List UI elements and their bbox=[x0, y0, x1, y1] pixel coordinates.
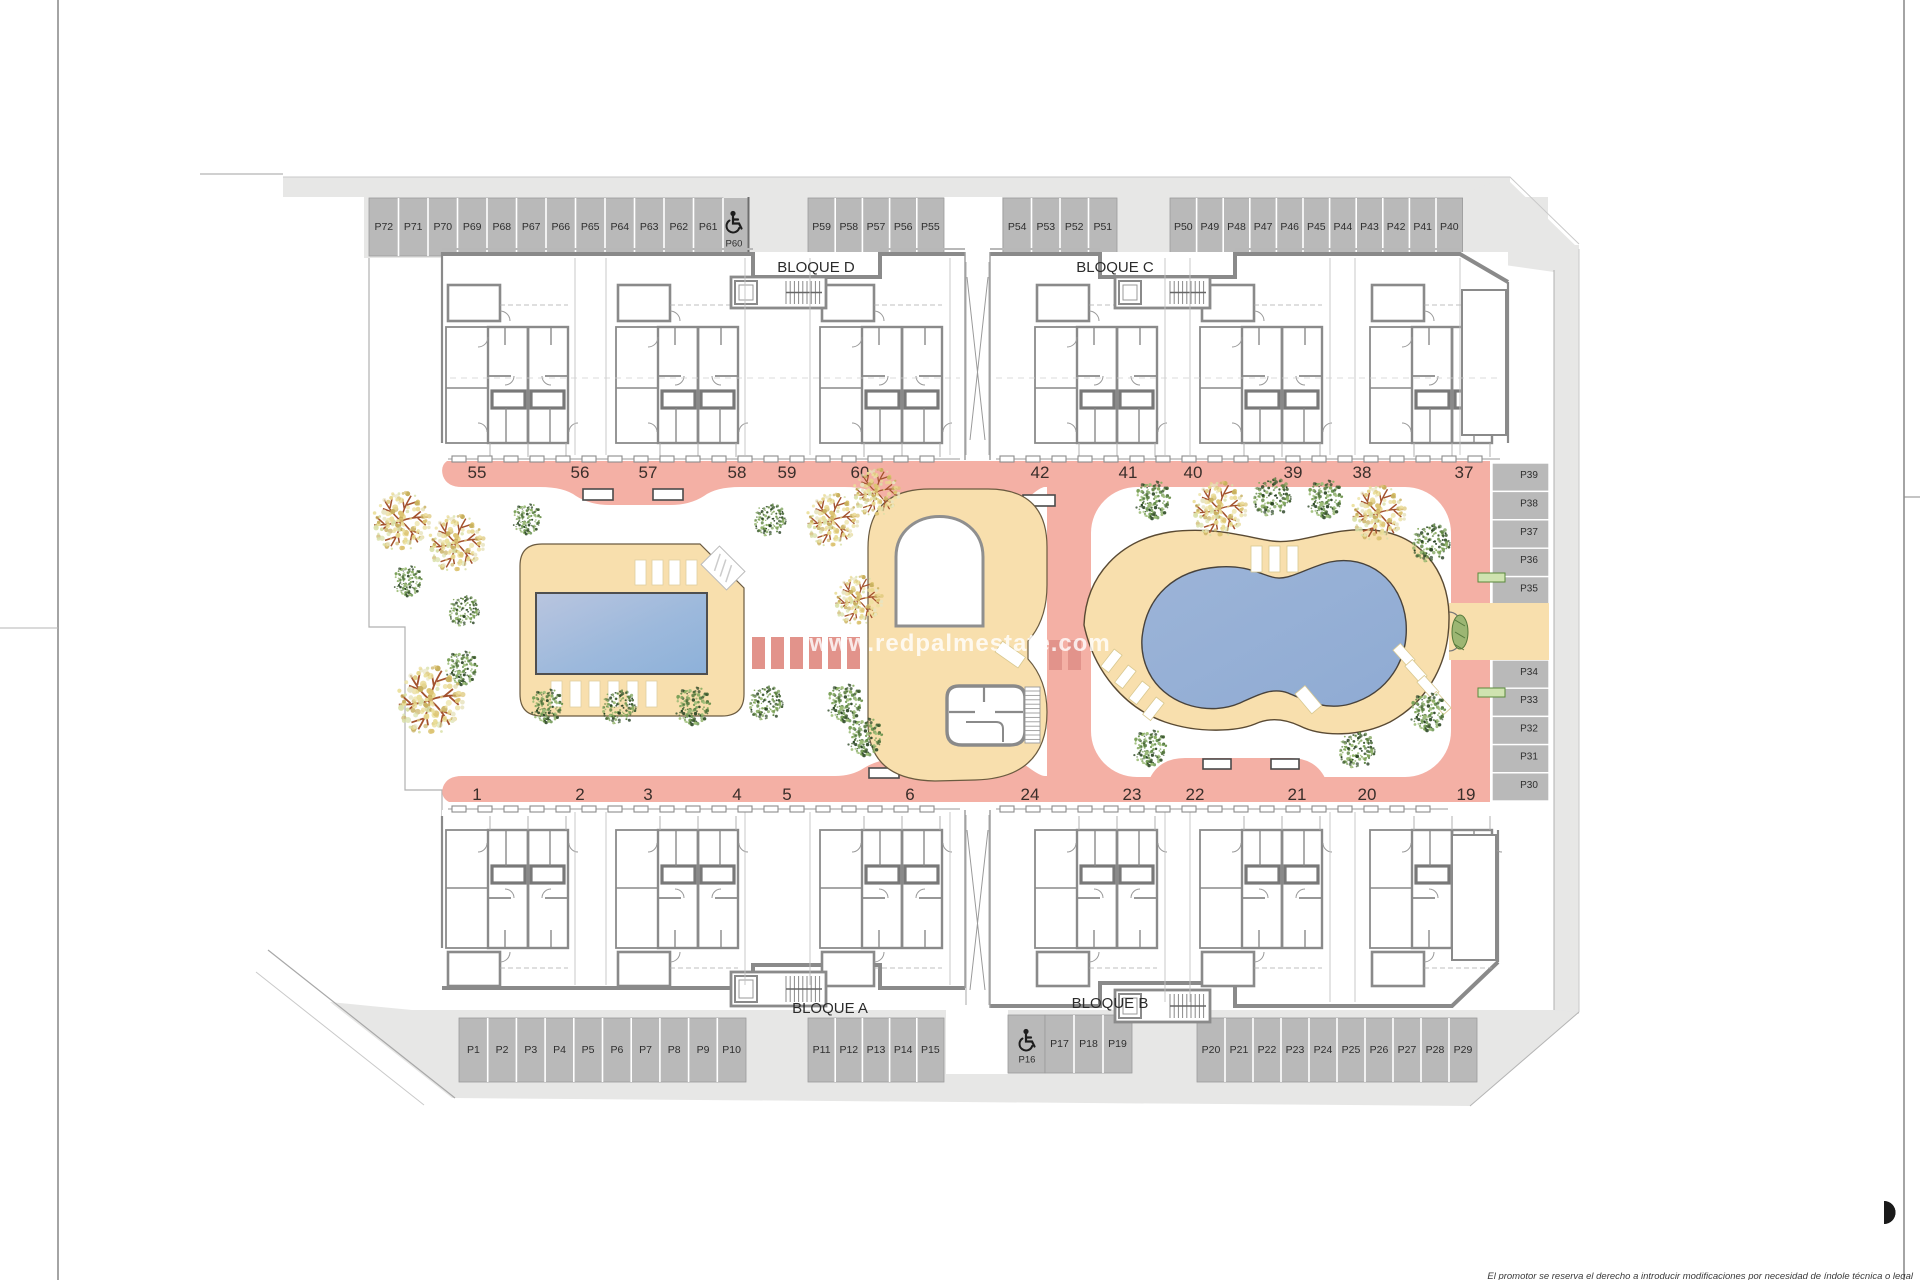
svg-text:P22: P22 bbox=[1258, 1044, 1277, 1056]
svg-text:P12: P12 bbox=[839, 1044, 858, 1056]
svg-text:P67: P67 bbox=[522, 221, 541, 233]
svg-text:www.redpalmestate.com: www.redpalmestate.com bbox=[808, 630, 1111, 657]
svg-text:P7: P7 bbox=[639, 1044, 652, 1056]
svg-text:39: 39 bbox=[1284, 463, 1303, 482]
svg-text:P55: P55 bbox=[921, 221, 940, 233]
svg-text:P52: P52 bbox=[1065, 221, 1084, 233]
svg-text:P69: P69 bbox=[463, 221, 482, 233]
svg-text:P47: P47 bbox=[1254, 221, 1273, 233]
svg-text:23: 23 bbox=[1123, 785, 1142, 804]
svg-text:41: 41 bbox=[1119, 463, 1138, 482]
svg-text:P19: P19 bbox=[1108, 1038, 1127, 1050]
svg-text:57: 57 bbox=[639, 463, 658, 482]
svg-text:P56: P56 bbox=[894, 221, 913, 233]
svg-text:P10: P10 bbox=[722, 1044, 741, 1056]
svg-text:BLOQUE C: BLOQUE C bbox=[1076, 259, 1154, 276]
svg-text:5: 5 bbox=[782, 785, 791, 804]
svg-text:59: 59 bbox=[778, 463, 797, 482]
svg-text:P5: P5 bbox=[582, 1044, 595, 1056]
svg-text:BLOQUE A: BLOQUE A bbox=[792, 1000, 868, 1017]
svg-text:P40: P40 bbox=[1440, 221, 1459, 233]
svg-text:P64: P64 bbox=[610, 221, 629, 233]
svg-text:P31: P31 bbox=[1520, 752, 1538, 763]
svg-text:P35: P35 bbox=[1520, 584, 1538, 595]
svg-text:37: 37 bbox=[1455, 463, 1474, 482]
svg-text:38: 38 bbox=[1353, 463, 1372, 482]
svg-text:P53: P53 bbox=[1036, 221, 1055, 233]
svg-text:P34: P34 bbox=[1520, 667, 1538, 678]
svg-text:24: 24 bbox=[1021, 785, 1040, 804]
svg-text:P50: P50 bbox=[1174, 221, 1193, 233]
svg-text:P51: P51 bbox=[1093, 221, 1112, 233]
svg-text:P66: P66 bbox=[551, 221, 570, 233]
svg-text:56: 56 bbox=[571, 463, 590, 482]
svg-text:P8: P8 bbox=[668, 1044, 681, 1056]
svg-text:1: 1 bbox=[472, 785, 481, 804]
svg-text:P2: P2 bbox=[496, 1044, 509, 1056]
svg-text:BLOQUE B: BLOQUE B bbox=[1072, 995, 1149, 1012]
svg-text:P27: P27 bbox=[1398, 1044, 1417, 1056]
svg-text:P20: P20 bbox=[1202, 1044, 1221, 1056]
svg-text:P58: P58 bbox=[839, 221, 858, 233]
svg-text:P29: P29 bbox=[1454, 1044, 1473, 1056]
svg-text:3: 3 bbox=[643, 785, 652, 804]
svg-text:P45: P45 bbox=[1307, 221, 1326, 233]
svg-text:42: 42 bbox=[1031, 463, 1050, 482]
svg-text:P70: P70 bbox=[433, 221, 452, 233]
svg-text:P39: P39 bbox=[1520, 470, 1538, 481]
svg-text:P72: P72 bbox=[374, 221, 393, 233]
svg-text:P36: P36 bbox=[1520, 555, 1538, 566]
svg-text:P54: P54 bbox=[1008, 221, 1027, 233]
svg-text:P32: P32 bbox=[1520, 723, 1538, 734]
svg-text:20: 20 bbox=[1358, 785, 1377, 804]
svg-text:P48: P48 bbox=[1227, 221, 1246, 233]
svg-text:P26: P26 bbox=[1370, 1044, 1389, 1056]
svg-text:P43: P43 bbox=[1360, 221, 1379, 233]
svg-text:P16: P16 bbox=[1019, 1055, 1036, 1066]
svg-text:6: 6 bbox=[905, 785, 914, 804]
svg-text:P46: P46 bbox=[1280, 221, 1299, 233]
svg-text:58: 58 bbox=[728, 463, 747, 482]
svg-text:P65: P65 bbox=[581, 221, 600, 233]
svg-text:P28: P28 bbox=[1426, 1044, 1445, 1056]
svg-text:P4: P4 bbox=[553, 1044, 566, 1056]
svg-text:P9: P9 bbox=[697, 1044, 710, 1056]
svg-text:P60: P60 bbox=[726, 239, 743, 250]
svg-text:P25: P25 bbox=[1342, 1044, 1361, 1056]
svg-text:P37: P37 bbox=[1520, 527, 1538, 538]
svg-text:P62: P62 bbox=[669, 221, 688, 233]
svg-text:4: 4 bbox=[732, 785, 741, 804]
svg-text:P30: P30 bbox=[1520, 780, 1538, 791]
svg-text:2: 2 bbox=[575, 785, 584, 804]
svg-text:P21: P21 bbox=[1230, 1044, 1249, 1056]
svg-text:P14: P14 bbox=[894, 1044, 913, 1056]
svg-text:P38: P38 bbox=[1520, 498, 1538, 509]
svg-text:P17: P17 bbox=[1050, 1038, 1069, 1050]
svg-text:P15: P15 bbox=[921, 1044, 940, 1056]
svg-text:55: 55 bbox=[468, 463, 487, 482]
svg-text:19: 19 bbox=[1457, 785, 1476, 804]
svg-text:BLOQUE D: BLOQUE D bbox=[777, 259, 855, 276]
svg-text:P33: P33 bbox=[1520, 695, 1538, 706]
svg-text:P3: P3 bbox=[524, 1044, 537, 1056]
svg-text:P18: P18 bbox=[1079, 1038, 1098, 1050]
svg-text:P71: P71 bbox=[404, 221, 423, 233]
svg-text:P41: P41 bbox=[1413, 221, 1432, 233]
svg-text:P13: P13 bbox=[867, 1044, 886, 1056]
svg-text:P63: P63 bbox=[640, 221, 659, 233]
svg-text:P42: P42 bbox=[1387, 221, 1406, 233]
svg-text:P24: P24 bbox=[1314, 1044, 1333, 1056]
svg-text:P68: P68 bbox=[492, 221, 511, 233]
svg-text:21: 21 bbox=[1288, 785, 1307, 804]
svg-text:P44: P44 bbox=[1334, 221, 1353, 233]
svg-text:P59: P59 bbox=[812, 221, 831, 233]
svg-text:P49: P49 bbox=[1201, 221, 1220, 233]
svg-text:40: 40 bbox=[1184, 463, 1203, 482]
svg-text:P11: P11 bbox=[813, 1044, 831, 1056]
svg-text:22: 22 bbox=[1186, 785, 1205, 804]
svg-text:P1: P1 bbox=[467, 1044, 480, 1056]
svg-text:El promotor se reserva el dere: El promotor se reserva el derecho a intr… bbox=[1487, 1271, 1914, 1280]
svg-text:P23: P23 bbox=[1286, 1044, 1305, 1056]
svg-text:P57: P57 bbox=[867, 221, 886, 233]
svg-text:P6: P6 bbox=[610, 1044, 623, 1056]
svg-text:P61: P61 bbox=[699, 221, 718, 233]
